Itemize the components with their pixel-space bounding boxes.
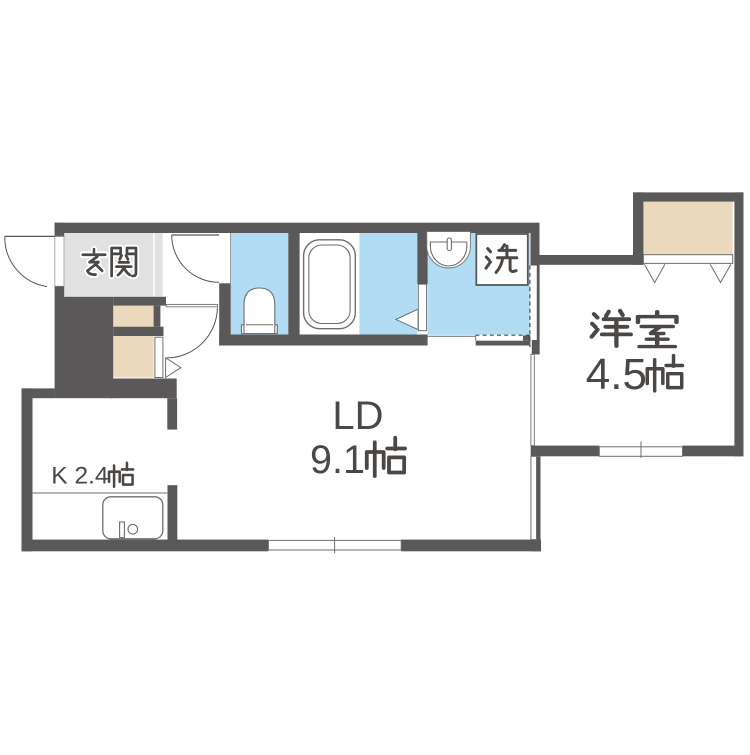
svg-text:LD: LD <box>332 394 383 438</box>
svg-text:4.5: 4.5 <box>586 350 647 399</box>
svg-text:9.1: 9.1 <box>310 438 365 482</box>
svg-text:K 2.4: K 2.4 <box>51 462 108 489</box>
